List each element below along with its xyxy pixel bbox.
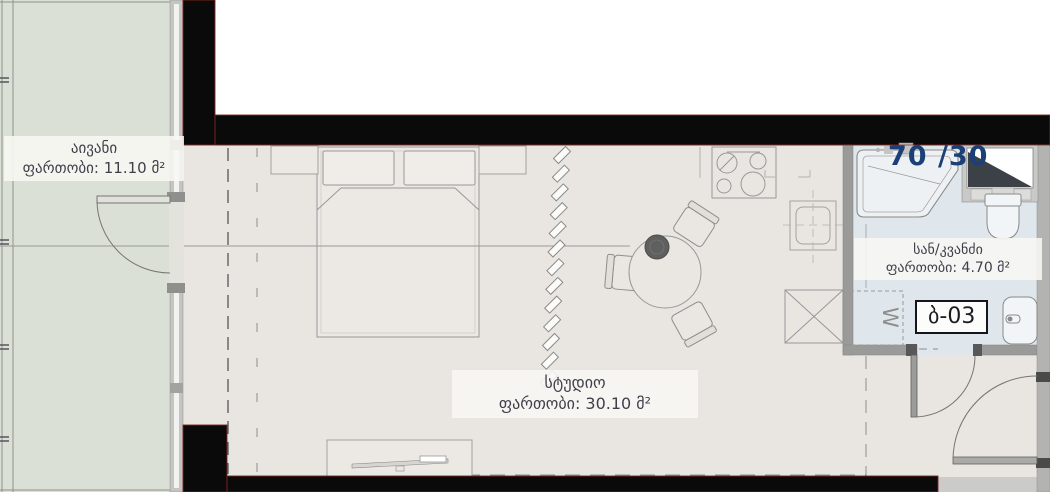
- bathroom-area: ფართობი: 4.70 მ²: [860, 259, 1036, 277]
- wall-bottom-black: [227, 476, 938, 492]
- nightstand-left: [271, 146, 318, 174]
- stove: [712, 147, 776, 198]
- washbasin: [1003, 297, 1037, 344]
- pillow: [323, 151, 394, 185]
- balcony-area: ფართობი: 11.10 მ²: [10, 159, 178, 179]
- bathroom-name: სან/კვანძი: [860, 241, 1036, 259]
- duct-shaft: [785, 290, 843, 343]
- bathroom-wall-left: [843, 145, 853, 355]
- studio-area: ფართობი: 30.10 მ²: [458, 394, 692, 415]
- wall-bottom-left-black: [183, 425, 227, 492]
- washer-symbol: W: [878, 307, 902, 328]
- tv-stand: [327, 440, 472, 477]
- wall-right: [1037, 145, 1050, 492]
- plant: [645, 235, 669, 259]
- balcony-label: აივანი ფართობი: 11.10 მ²: [4, 136, 184, 181]
- nightstand-right: [479, 146, 526, 174]
- bed: [317, 147, 479, 337]
- bathroom-wall-bottom: [975, 345, 1037, 355]
- unit-number-badge: ბ-03: [915, 300, 988, 334]
- floor-plan: W აივანი ფართობი: 11.10 მ² სტუდიო ფართობ…: [0, 0, 1050, 492]
- wall-left-black: [183, 0, 215, 145]
- studio-label: სტუდიო ფართობი: 30.10 მ²: [452, 370, 698, 418]
- balcony-name: აივანი: [10, 139, 178, 159]
- bathroom-label: სან/კვანძი ფართობი: 4.70 მ²: [854, 238, 1042, 280]
- toilet: [985, 188, 1021, 239]
- bathroom-wall-bottom: [843, 345, 917, 355]
- vestibule-floor: [938, 477, 1037, 492]
- plan-ratio-label: 70 /30: [888, 141, 988, 172]
- pillow: [404, 151, 475, 185]
- studio-name: სტუდიო: [458, 373, 692, 394]
